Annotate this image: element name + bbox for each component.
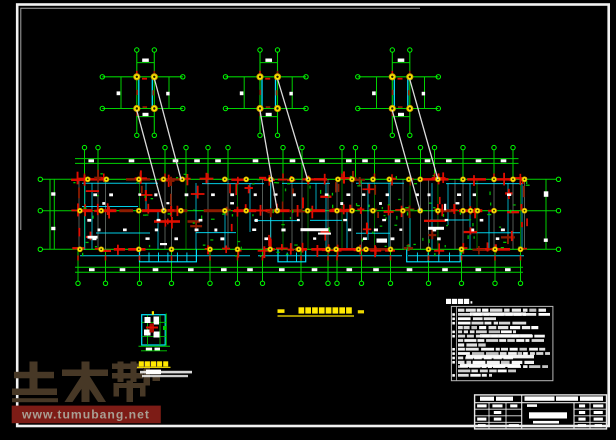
svg-text:www.tumubang.net: www.tumubang.net bbox=[21, 407, 150, 421]
